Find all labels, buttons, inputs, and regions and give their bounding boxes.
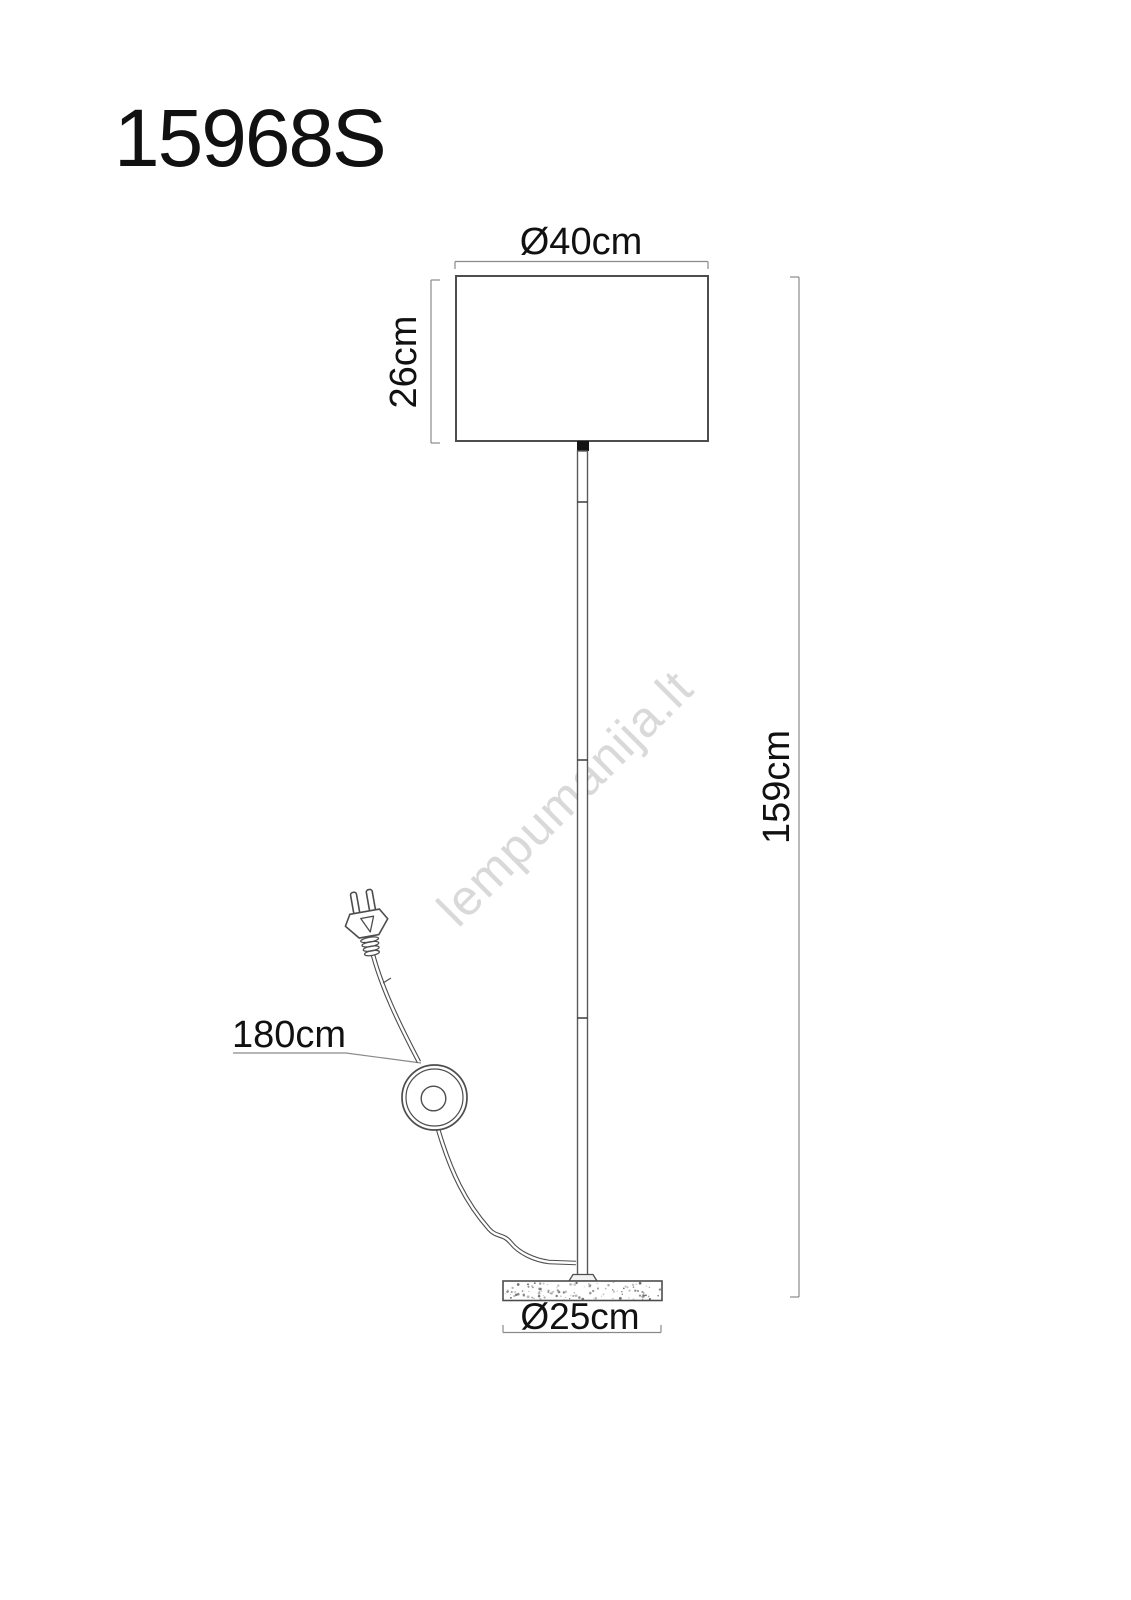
stem-flange bbox=[569, 1275, 597, 1282]
total-height-label: 159cm bbox=[756, 687, 798, 887]
cable-break-tick bbox=[383, 978, 391, 983]
plug-prong-left bbox=[350, 892, 360, 915]
foot-switch-icon bbox=[402, 1065, 467, 1130]
dimension-line-shade-height bbox=[431, 280, 440, 443]
base-diameter-label: Ø25cm bbox=[480, 1296, 680, 1338]
shade-height-label: 26cm bbox=[383, 262, 425, 462]
plug-body bbox=[343, 908, 390, 940]
technical-drawing-page: lempumanija.lt bbox=[0, 0, 1131, 1600]
power-plug-icon bbox=[340, 887, 394, 959]
lamp-shade bbox=[456, 276, 708, 441]
plug-prong-right bbox=[366, 889, 376, 912]
shade-diameter-label: Ø40cm bbox=[481, 221, 681, 264]
plug-strain-relief bbox=[360, 936, 381, 957]
lamp-socket bbox=[577, 441, 589, 451]
product-code: 15968S bbox=[114, 92, 385, 186]
lamp-stem bbox=[569, 451, 597, 1281]
cable-length-label: 180cm bbox=[232, 1014, 346, 1057]
